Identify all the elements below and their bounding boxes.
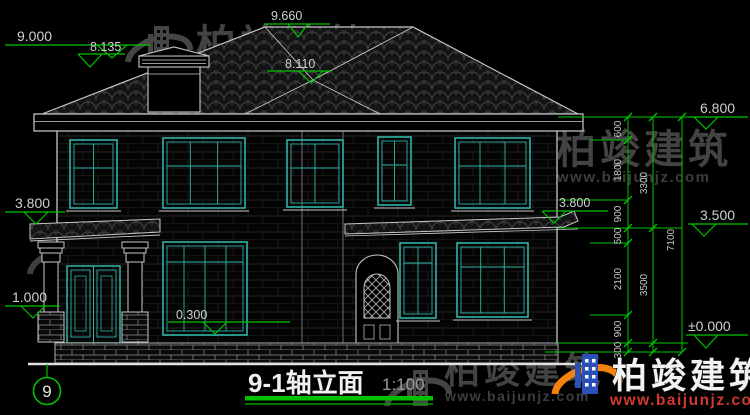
drawing-scale: 1:100 xyxy=(382,375,425,394)
chimney xyxy=(139,47,209,112)
elevation-label: 1.000 xyxy=(12,289,47,305)
cad-viewport[interactable]: 柏竣建筑 www.baijunjz.com 柏竣建筑 www.baijunjz.… xyxy=(0,0,750,415)
marker-roof-left xyxy=(78,54,125,67)
plinth-base xyxy=(28,343,592,364)
dim-value: 500 xyxy=(613,227,624,244)
title-underline xyxy=(245,396,433,401)
marker-second-floor xyxy=(688,224,748,236)
dim-value: 7100 xyxy=(666,228,677,251)
dim-value: 900 xyxy=(613,320,624,337)
marker-porch-roof xyxy=(5,212,65,224)
watermark-brand-text: 柏竣建筑 xyxy=(556,128,732,172)
elevation-label: 3.500 xyxy=(700,207,735,223)
watermark-url-text: www.baijunjz.com xyxy=(609,392,750,409)
elevation-label: ±0.000 xyxy=(688,318,731,334)
dim-value: 900 xyxy=(613,205,624,222)
dim-value: 300 xyxy=(613,341,624,358)
elevation-label: 9.660 xyxy=(271,9,302,23)
elevation-label: 9.000 xyxy=(17,28,52,44)
dim-value: 600 xyxy=(613,120,624,137)
watermark-url-text: www.baijunjz.com xyxy=(444,388,590,404)
title-block: 9-1轴立面 1:100 xyxy=(245,368,433,404)
main-eave-band xyxy=(34,114,583,131)
dim-value: 3500 xyxy=(639,273,650,296)
elevation-label: 8.135 xyxy=(90,40,121,54)
elevation-label: 3.800 xyxy=(559,196,590,210)
elevation-label: 8.110 xyxy=(285,57,315,71)
arched-entry-door xyxy=(356,255,398,345)
dim-value: 1800 xyxy=(613,158,624,181)
axis-bubble: 9 xyxy=(34,364,61,405)
elevation-label: 3.800 xyxy=(15,195,50,211)
dim-value: 2100 xyxy=(613,267,624,290)
elevation-label: 0.300 xyxy=(176,308,207,322)
elevation-drawing-canvas: 柏竣建筑 www.baijunjz.com 柏竣建筑 www.baijunjz.… xyxy=(0,0,750,415)
drawing-title: 9-1轴立面 xyxy=(248,368,364,398)
elevation-label: 6.800 xyxy=(700,100,735,116)
watermark-url-text: www.baijunjz.com xyxy=(556,169,710,186)
window xyxy=(66,140,121,211)
axis-number: 9 xyxy=(42,382,51,401)
watermark-brand-text: 柏竣建筑 xyxy=(612,356,750,396)
dim-value: 3300 xyxy=(639,171,650,194)
marker-ground xyxy=(686,335,748,348)
